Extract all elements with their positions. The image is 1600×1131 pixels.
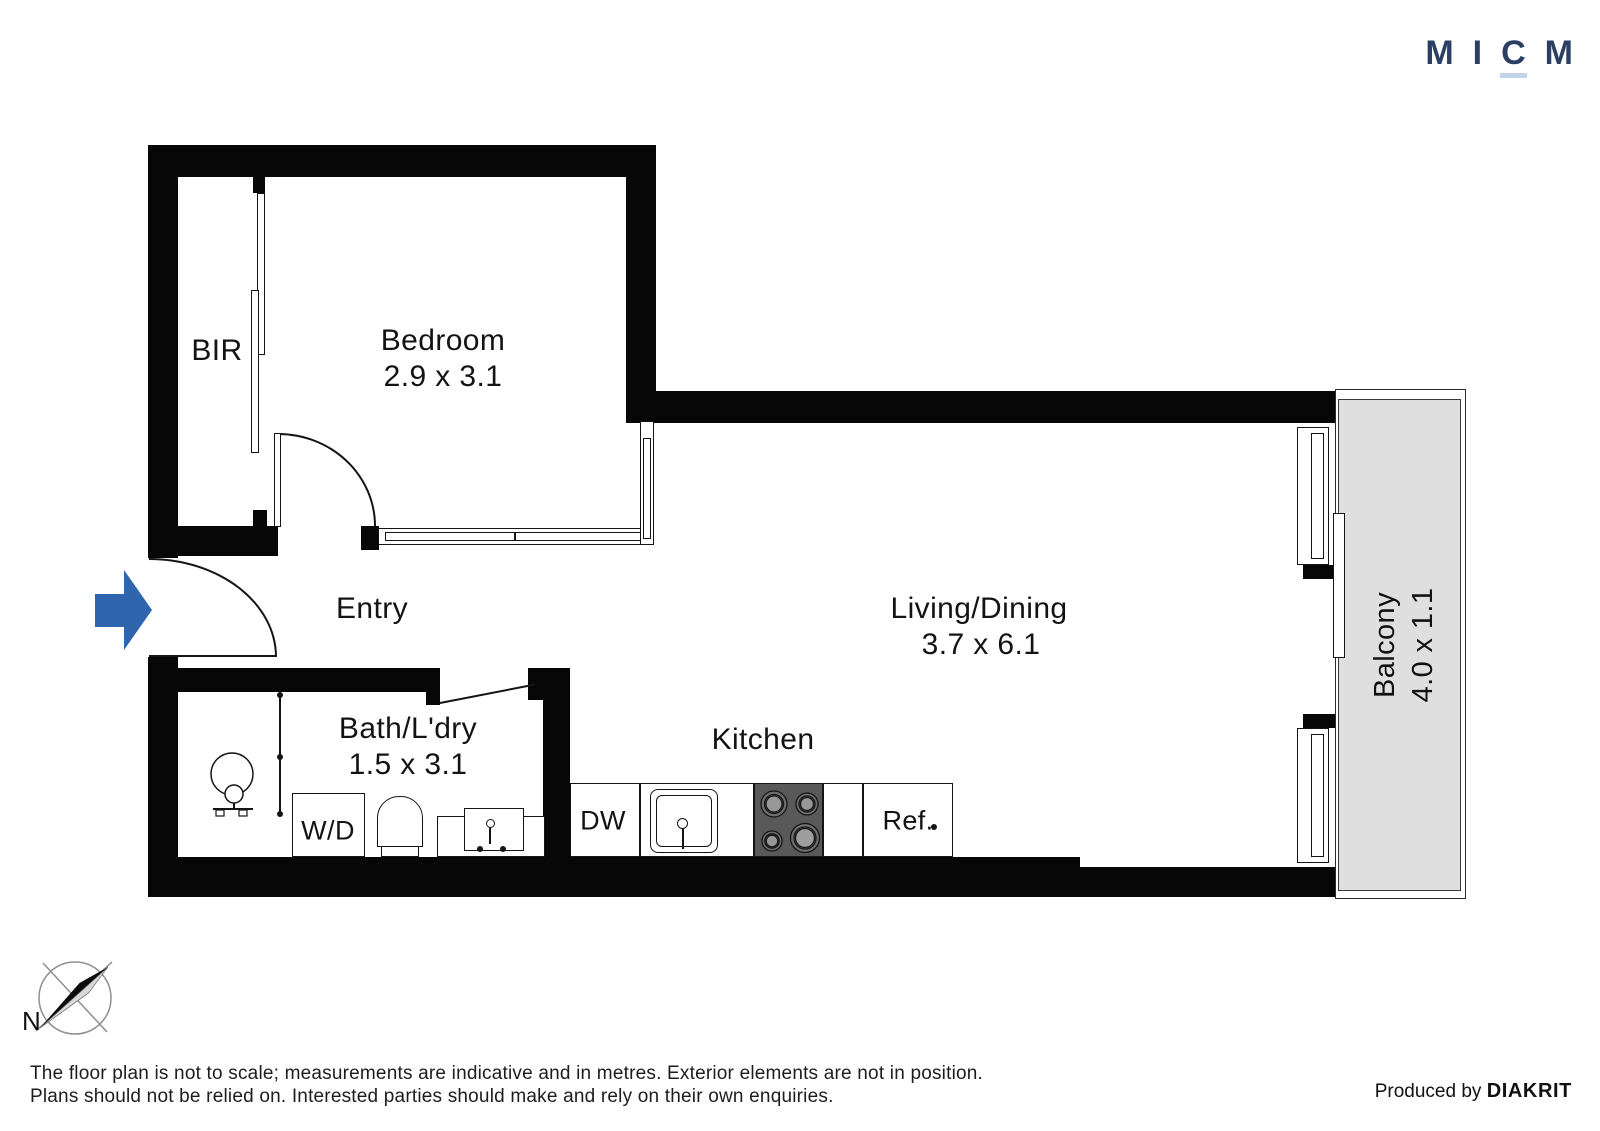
compass-north-label: N bbox=[22, 1006, 41, 1037]
disclaimer-line-1: The floor plan is not to scale; measurem… bbox=[30, 1063, 983, 1085]
vanity-knob-left bbox=[477, 846, 483, 852]
toilet-icon bbox=[377, 796, 423, 847]
logo-letter-c: C bbox=[1501, 36, 1526, 70]
logo-letter-m1: M bbox=[1425, 36, 1453, 70]
fridge-label: Ref. bbox=[882, 806, 933, 837]
entry-arrow-head-icon bbox=[124, 570, 152, 650]
micm-logo: M I C M bbox=[1425, 36, 1573, 70]
wall-bottom-left bbox=[148, 857, 1080, 897]
wall-bath-right bbox=[543, 668, 570, 860]
wall-bedroom-right bbox=[626, 145, 656, 423]
balcony-slider-glass-upper bbox=[1311, 433, 1324, 559]
shower-screen-hinge-top bbox=[277, 692, 283, 698]
compass-icon bbox=[28, 951, 122, 1045]
wall-balcony-stub-upper bbox=[1303, 565, 1335, 579]
kitchen-label: Kitchen bbox=[712, 723, 815, 757]
bir-slider-door-left bbox=[251, 290, 259, 453]
entry-label: Entry bbox=[336, 592, 408, 626]
shower-screen-hinge-bottom bbox=[277, 811, 283, 817]
balcony-slider-panel-offset bbox=[1333, 513, 1345, 658]
balcony-name: Balcony bbox=[1366, 588, 1404, 703]
kitchen-faucet-icon bbox=[677, 818, 688, 829]
bath-laundry-label: Bath/L'dry bbox=[339, 712, 477, 746]
entry-arrow-icon bbox=[95, 594, 125, 627]
floorplan-canvas: Balcony 4.0 x 1.1 W/D DW bbox=[0, 0, 1600, 1131]
wall-left-upper bbox=[148, 145, 178, 558]
counter-gap-box bbox=[823, 783, 863, 857]
bedroom-label: Bedroom bbox=[381, 324, 506, 358]
living-dining-label: Living/Dining bbox=[891, 592, 1068, 626]
balcony-dims: 4.0 x 1.1 bbox=[1404, 588, 1442, 703]
stove-burners-icon bbox=[755, 784, 824, 858]
dishwasher-label: DW bbox=[580, 806, 626, 837]
logo-letter-m2: M bbox=[1545, 36, 1573, 70]
bedroom-window-mullion bbox=[514, 532, 516, 541]
bedroom-door-leaf bbox=[274, 433, 281, 527]
stove-icon bbox=[754, 783, 823, 857]
balcony-label: Balcony 4.0 x 1.1 bbox=[1366, 588, 1442, 703]
produced-by: Produced by DIAKRIT bbox=[1375, 1080, 1572, 1103]
bedroom-door-swing bbox=[278, 433, 376, 526]
bir-label: BIR bbox=[191, 334, 242, 368]
toilet-base bbox=[381, 846, 419, 857]
vanity-faucet-stem bbox=[489, 827, 491, 844]
producer-name: DIAKRIT bbox=[1487, 1080, 1572, 1102]
wall-bath-top bbox=[148, 668, 440, 692]
wall-bedroom-bottom bbox=[148, 526, 278, 556]
disclaimer-line-2: Plans should not be relied on. Intereste… bbox=[30, 1086, 834, 1108]
shower-icon bbox=[203, 745, 263, 823]
vanity-knob-right bbox=[500, 846, 506, 852]
wall-living-top bbox=[626, 391, 1335, 423]
wall-bir-stub-top bbox=[253, 177, 265, 193]
wall-bath-top-endcap bbox=[426, 690, 440, 705]
bedroom-window-horizontal-glass bbox=[385, 532, 647, 541]
wall-bottom-right bbox=[1080, 867, 1335, 897]
kitchen-faucet-stem bbox=[682, 829, 684, 849]
balcony-slider-glass-lower bbox=[1311, 734, 1324, 857]
living-dining-dims: 3.7 x 6.1 bbox=[922, 628, 1041, 662]
washer-dryer-label: W/D bbox=[301, 816, 355, 847]
shower-screen-hinge-mid bbox=[277, 754, 283, 760]
bath-laundry-dims: 1.5 x 3.1 bbox=[349, 748, 468, 782]
wall-bir-stub-bottom bbox=[253, 510, 267, 526]
logo-letter-i: I bbox=[1473, 36, 1482, 70]
fridge-handle-dot bbox=[931, 824, 937, 830]
produced-by-text: Produced by bbox=[1375, 1081, 1487, 1102]
bedroom-dims: 2.9 x 3.1 bbox=[384, 360, 503, 394]
vanity-basin bbox=[464, 808, 524, 851]
entry-door-swing bbox=[149, 558, 277, 657]
wall-window-stub bbox=[361, 526, 379, 550]
bedroom-window-vertical-glass bbox=[643, 438, 651, 539]
bath-door-leaf bbox=[440, 684, 536, 704]
wall-bedroom-top bbox=[148, 145, 655, 177]
wall-balcony-stub-lower bbox=[1303, 714, 1335, 728]
